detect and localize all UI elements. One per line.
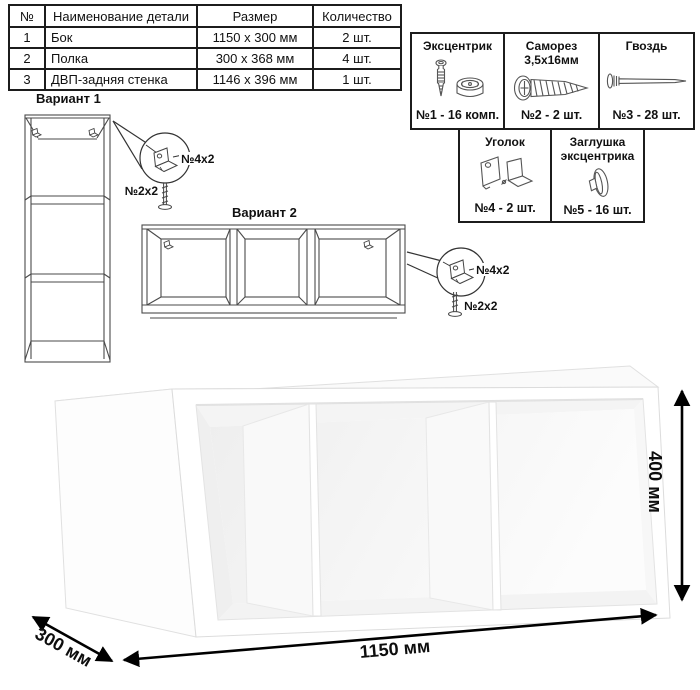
hardware-title: Саморез3,5х16мм [524,39,578,67]
screw-qty-label: №2х2 [125,184,159,198]
cam-and-dowel-icon [412,53,503,108]
header-num: № [9,5,45,27]
header-qty: Количество [313,5,401,27]
hardware-cell-screw: Саморез3,5х16мм [503,32,600,130]
header-name: Наименование детали [45,5,197,27]
hardware-count: №2 - 2 шт. [521,108,582,122]
variant1-callout [113,121,190,183]
variant1-cabinet-outline [25,115,110,362]
variant2-cabinet-outline [142,225,405,318]
cam-cover-icon [552,163,643,203]
variant2-diagram: №4х2 №2х2 [130,200,530,335]
variant1-title: Вариант 1 [36,91,101,106]
cell-name: ДВП-задняя стенка [45,69,197,90]
shelf-left-face [55,389,196,637]
cell-size: 1150 x 300 мм [197,27,313,48]
hardware-title: Заглушкаэксцентрика [561,135,635,163]
variant2-callout [407,248,485,296]
parts-table: № Наименование детали Размер Количество … [8,4,402,91]
divider-side-face [243,404,313,616]
shelf-render: 400 мм 1150 мм 300 мм [0,360,700,690]
hardware-cell-cam: Эксцентрик [410,32,505,130]
table-row: 2 Полка 300 x 368 мм 4 шт. [9,48,401,69]
cell-name: Полка [45,48,197,69]
parts-table-header-row: № Наименование детали Размер Количество [9,5,401,27]
screw-icon [505,67,598,108]
cell-qty: 4 шт. [313,48,401,69]
nail-icon [600,53,693,108]
hardware-title: Эксцентрик [423,39,492,53]
hardware-count: №3 - 28 шт. [612,108,680,122]
bracket-qty-label: №4х2 [181,152,215,166]
cell-size: 300 x 368 мм [197,48,313,69]
cell-size: 1146 x 396 мм [197,69,313,90]
header-size: Размер [197,5,313,27]
cell-num: 3 [9,69,45,90]
cell-num: 2 [9,48,45,69]
screw-qty-label: №2х2 [464,299,498,313]
bracket-qty-label: №4х2 [476,263,510,277]
depth-dimension-label: 300 мм [32,623,96,670]
assembly-instruction-sheet: № Наименование детали Размер Количество … [0,0,700,690]
corner-bracket-icon [460,149,550,201]
hardware-count: №5 - 16 шт. [563,203,631,217]
table-row: 1 Бок 1150 x 300 мм 2 шт. [9,27,401,48]
cell-num: 1 [9,27,45,48]
cell-qty: 1 шт. [313,69,401,90]
hardware-count: №1 - 16 комп. [416,108,499,122]
height-dimension-label: 400 мм [645,451,665,513]
cell-qty: 2 шт. [313,27,401,48]
divider-side-face [426,402,493,610]
table-row: 3 ДВП-задняя стенка 1146 x 396 мм 1 шт. [9,69,401,90]
hardware-title: Уголок [485,135,525,149]
hardware-cell-cap: Заглушкаэксцентрика №5 - 16 шт. [550,128,645,223]
cell-name: Бок [45,27,197,48]
hardware-cell-nail: Гвоздь №3 - 28 шт. [598,32,695,130]
hardware-title: Гвоздь [626,39,668,53]
